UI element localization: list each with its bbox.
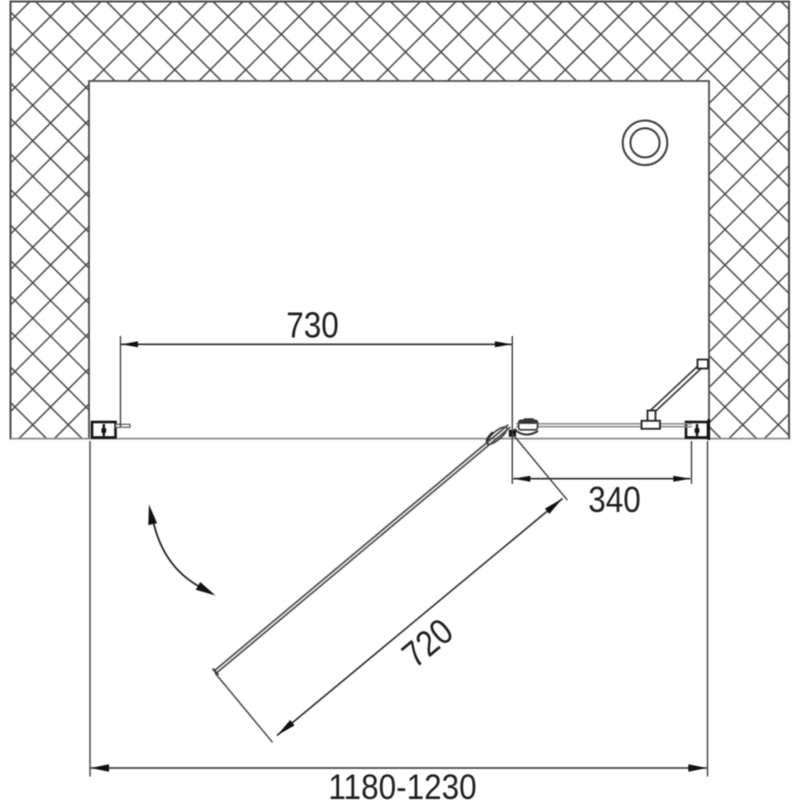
svg-text:340: 340 [588,480,641,520]
svg-text:1180-1230: 1180-1230 [328,769,476,800]
svg-text:730: 730 [286,306,339,346]
